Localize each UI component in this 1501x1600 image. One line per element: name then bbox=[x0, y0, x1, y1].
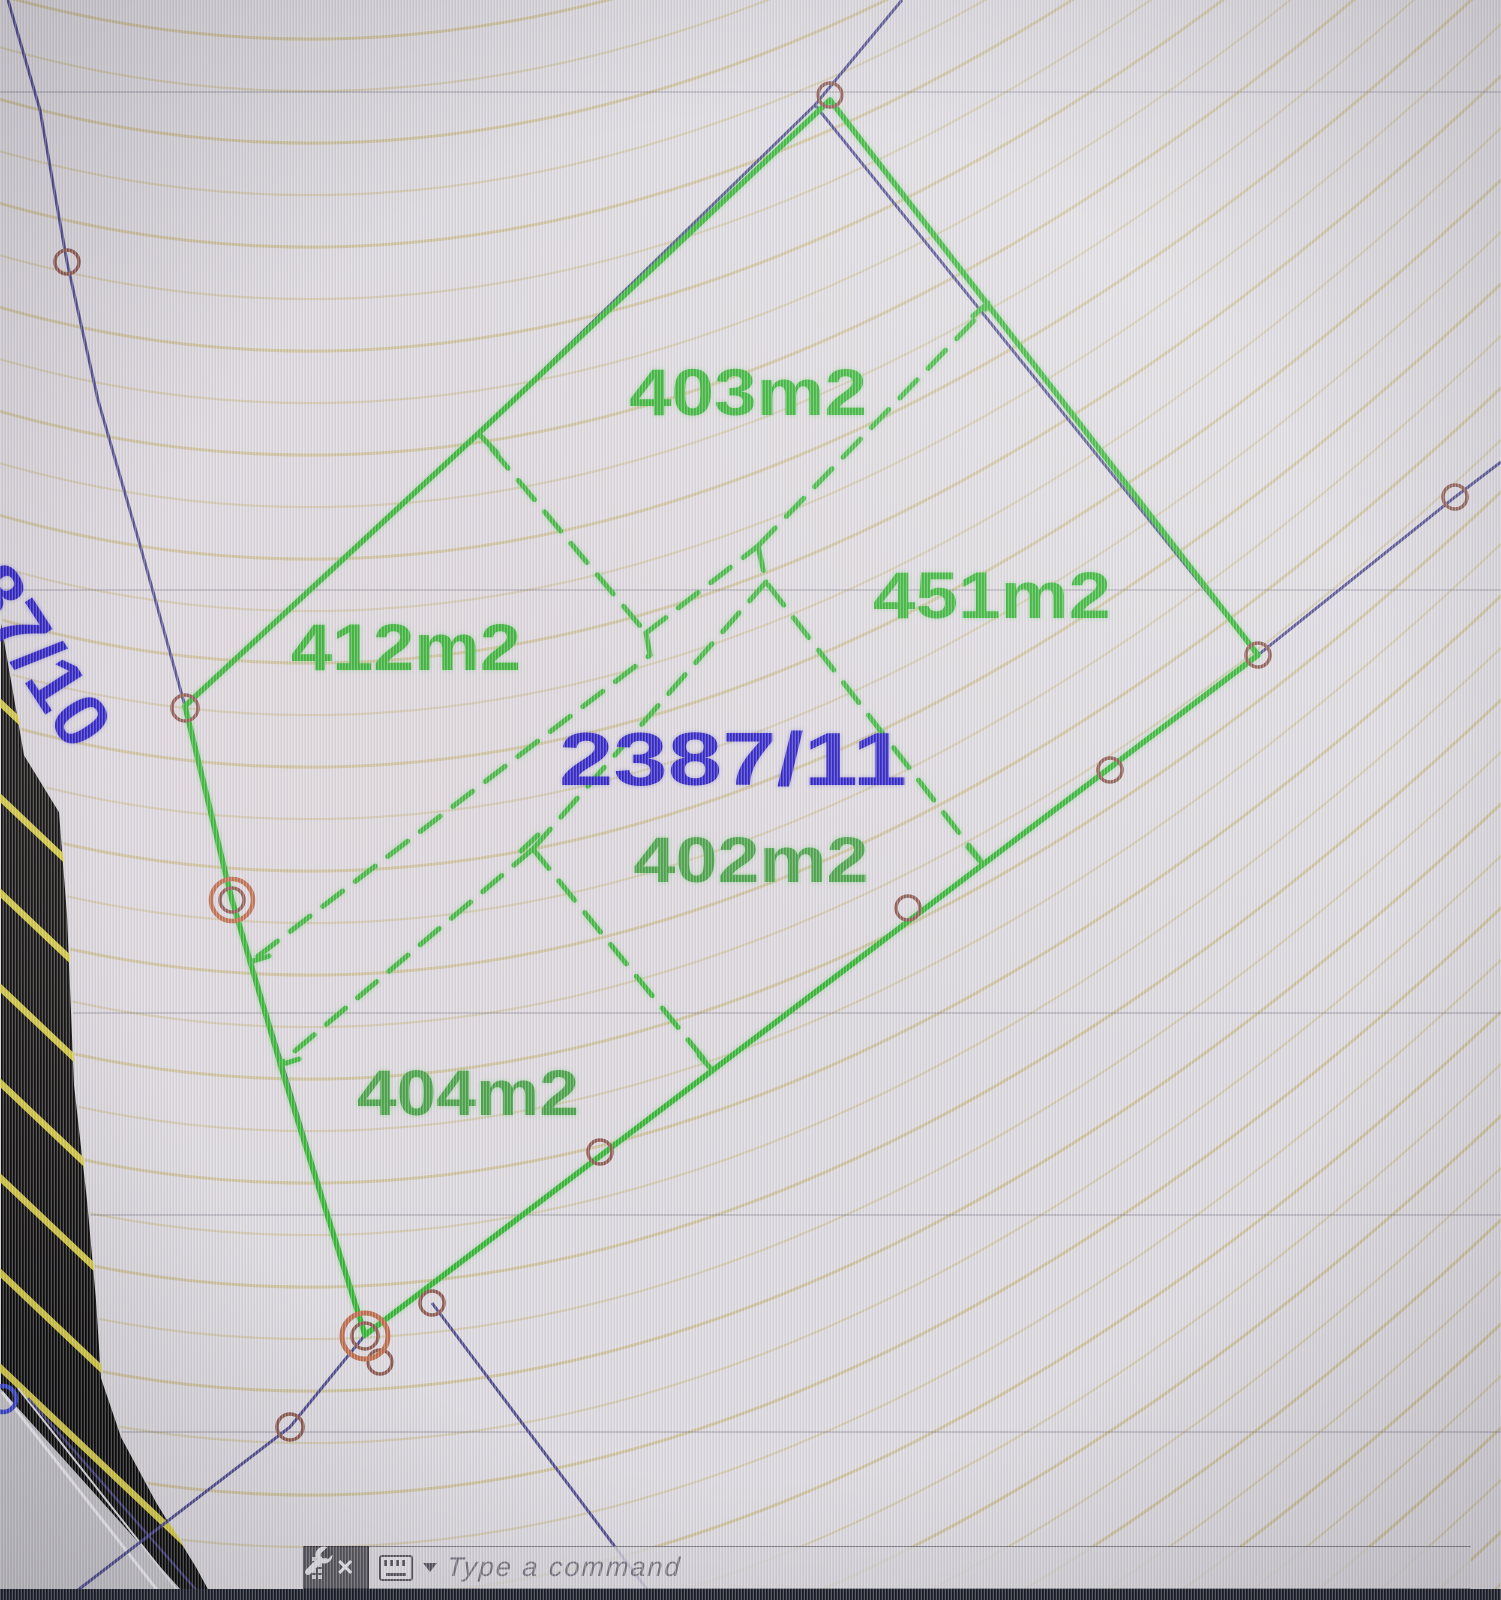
dropdown-arrow-icon[interactable] bbox=[423, 1563, 437, 1572]
command-input[interactable]: Type a command bbox=[369, 1546, 1471, 1589]
lot-label-451: 451m2 bbox=[873, 558, 1111, 632]
close-icon[interactable]: ✕ bbox=[336, 1557, 354, 1579]
lot-label-402: 402m2 bbox=[634, 824, 869, 896]
cad-screen: 403m2 451m2 412m2 402m2 404m2 2387/11 87… bbox=[0, 0, 1501, 1600]
lot-label-412: 412m2 bbox=[291, 610, 521, 684]
command-input-placeholder: Type a command bbox=[446, 1552, 683, 1583]
keyboard-icon[interactable] bbox=[379, 1555, 413, 1581]
command-bar: ✕ Type a command bbox=[303, 1546, 1471, 1589]
wrench-icon[interactable] bbox=[303, 1546, 333, 1576]
taskbar-strip bbox=[0, 1589, 1501, 1600]
map-canvas[interactable]: 403m2 451m2 412m2 402m2 404m2 2387/11 87… bbox=[0, 0, 1501, 1600]
parcel-id-label: 2387/11 bbox=[559, 717, 907, 801]
command-bar-tools: ✕ bbox=[303, 1546, 369, 1589]
lot-label-404: 404m2 bbox=[357, 1057, 579, 1129]
lot-label-403: 403m2 bbox=[629, 355, 867, 429]
